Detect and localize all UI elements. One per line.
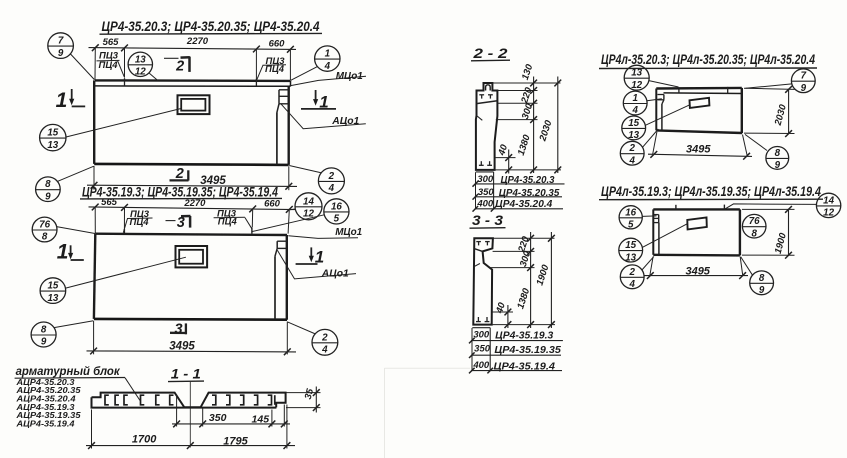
svg-text:3495: 3495 (685, 265, 710, 277)
svg-text:1: 1 (632, 93, 637, 104)
svg-text:220: 220 (519, 86, 535, 106)
svg-text:МЦо1: МЦо1 (335, 227, 362, 238)
svg-text:4: 4 (321, 345, 328, 356)
svg-text:2: 2 (175, 166, 184, 182)
svg-text:13: 13 (47, 140, 58, 151)
svg-text:12: 12 (631, 80, 642, 91)
svg-text:ЦР4-35.19.4: ЦР4-35.19.4 (494, 361, 556, 372)
svg-text:1900: 1900 (773, 231, 789, 255)
svg-text:8: 8 (751, 228, 757, 239)
svg-text:12: 12 (135, 67, 146, 78)
svg-text:ЦР4-35.20.3; ЦР4-35.20.35; ЦР4: ЦР4-35.20.3; ЦР4-35.20.35; ЦР4-35.20.4 (102, 19, 320, 34)
svg-text:1: 1 (57, 241, 69, 264)
svg-text:400: 400 (472, 360, 490, 371)
svg-text:400: 400 (476, 199, 494, 210)
svg-text:2: 2 (175, 59, 184, 75)
svg-text:145: 145 (252, 414, 270, 426)
svg-text:2270: 2270 (186, 36, 209, 47)
svg-text:3: 3 (177, 215, 185, 231)
svg-text:13: 13 (628, 130, 639, 141)
svg-text:1: 1 (56, 89, 68, 112)
svg-text:ЦР4-35.19.3: ЦР4-35.19.3 (495, 331, 553, 342)
svg-text:15: 15 (628, 118, 639, 129)
svg-text:350: 350 (478, 187, 495, 198)
svg-text:7: 7 (801, 71, 807, 82)
svg-text:АЦо1: АЦо1 (331, 116, 359, 127)
svg-text:1: 1 (319, 92, 328, 111)
svg-text:2: 2 (628, 267, 635, 278)
svg-text:15: 15 (47, 281, 58, 292)
svg-text:565: 565 (101, 197, 118, 208)
svg-text:5: 5 (628, 220, 634, 231)
svg-text:5: 5 (334, 214, 340, 225)
svg-text:660: 660 (269, 38, 286, 49)
svg-text:8: 8 (41, 325, 47, 336)
svg-text:9: 9 (759, 285, 765, 296)
svg-text:ЦР4-35.20.3: ЦР4-35.20.3 (501, 175, 555, 186)
svg-text:3 - 3: 3 - 3 (472, 212, 503, 228)
svg-text:4: 4 (324, 61, 331, 72)
svg-text:ЦР4л-35.20.3; ЦР4л-35.20.35; Ц: ЦР4л-35.20.3; ЦР4л-35.20.35; ЦР4л-35.20.… (601, 52, 815, 67)
svg-text:4: 4 (631, 105, 638, 116)
svg-text:2030: 2030 (772, 103, 789, 128)
svg-text:3495: 3495 (169, 341, 195, 353)
svg-text:660: 660 (264, 199, 281, 210)
svg-text:4: 4 (628, 279, 635, 290)
svg-text:4: 4 (628, 155, 635, 166)
svg-text:13: 13 (135, 54, 146, 65)
svg-text:15: 15 (47, 128, 58, 139)
svg-text:76: 76 (749, 216, 760, 227)
svg-text:15: 15 (625, 240, 636, 251)
svg-text:1795: 1795 (223, 435, 248, 447)
svg-text:16: 16 (331, 201, 342, 212)
svg-text:13: 13 (625, 252, 636, 263)
svg-text:1380: 1380 (516, 133, 533, 157)
svg-text:1700: 1700 (132, 433, 157, 445)
svg-text:565: 565 (103, 37, 120, 48)
svg-text:ЦР4л-35.19.3; ЦР4л-35.19.35; Ц: ЦР4л-35.19.3; ЦР4л-35.19.35; ЦР4л-35.19.… (601, 184, 821, 199)
svg-text:9: 9 (45, 191, 51, 202)
svg-text:350: 350 (209, 412, 227, 424)
svg-text:12: 12 (823, 208, 834, 219)
svg-text:2: 2 (628, 143, 635, 154)
svg-text:9: 9 (801, 83, 807, 94)
svg-text:МЦо1: МЦо1 (336, 71, 363, 82)
svg-text:13: 13 (631, 68, 642, 79)
svg-text:300: 300 (473, 329, 490, 340)
svg-text:2 - 2: 2 - 2 (472, 45, 507, 61)
svg-text:300: 300 (477, 174, 494, 185)
svg-text:1 - 1: 1 - 1 (171, 365, 201, 381)
svg-text:350: 350 (474, 344, 491, 355)
svg-text:2: 2 (328, 171, 335, 182)
svg-text:16: 16 (625, 207, 636, 218)
svg-text:9: 9 (58, 48, 64, 59)
svg-text:9: 9 (775, 160, 781, 171)
svg-text:3495: 3495 (686, 144, 711, 156)
svg-text:ЦР4-35.20.35: ЦР4-35.20.35 (499, 188, 560, 199)
svg-text:35: 35 (303, 387, 317, 401)
svg-text:14: 14 (823, 195, 834, 206)
svg-text:9: 9 (41, 337, 47, 348)
svg-text:ПЦ4: ПЦ4 (99, 60, 118, 70)
svg-text:АЦо1: АЦо1 (321, 269, 349, 280)
svg-text:1: 1 (325, 49, 330, 60)
svg-text:2030: 2030 (537, 118, 555, 143)
svg-text:8: 8 (42, 232, 48, 243)
svg-text:1380: 1380 (515, 286, 532, 310)
svg-text:14: 14 (303, 196, 314, 207)
svg-text:76: 76 (39, 220, 50, 231)
svg-text:1: 1 (315, 248, 324, 267)
svg-text:3: 3 (175, 322, 183, 338)
svg-text:7: 7 (58, 36, 64, 47)
svg-text:АЦР4-35.19.4: АЦР4-35.19.4 (15, 419, 74, 429)
svg-text:2: 2 (321, 332, 328, 343)
svg-text:13: 13 (47, 293, 58, 304)
svg-text:8: 8 (45, 179, 51, 190)
svg-text:1900: 1900 (535, 263, 552, 287)
svg-text:4: 4 (328, 183, 335, 194)
svg-text:8: 8 (759, 273, 765, 284)
svg-text:8: 8 (775, 148, 781, 159)
svg-text:ЦР4-35.20.4: ЦР4-35.20.4 (495, 199, 552, 210)
svg-text:2270: 2270 (183, 198, 206, 209)
svg-text:ЦР4-35.19.35: ЦР4-35.19.35 (494, 345, 561, 356)
